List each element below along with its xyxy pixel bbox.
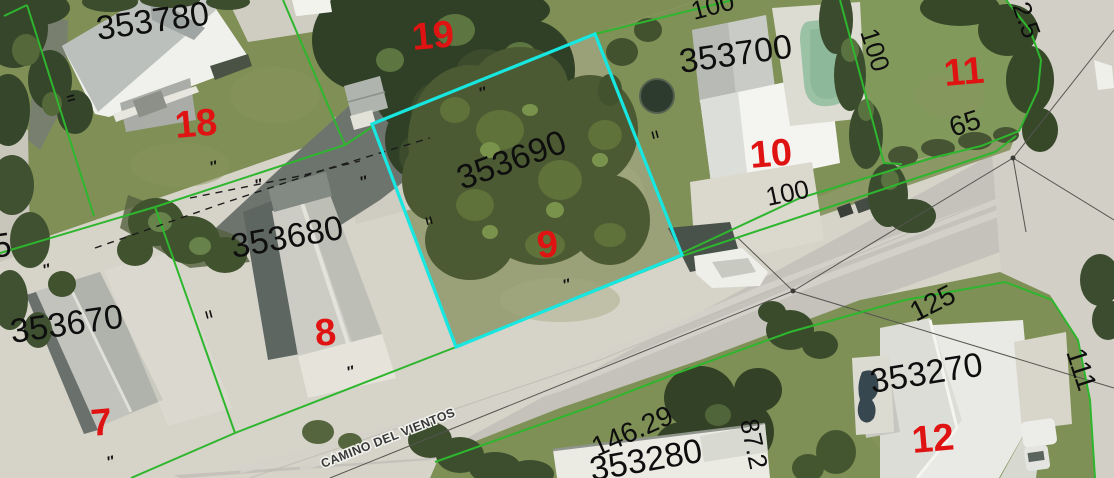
svg-text:11: 11 bbox=[942, 50, 986, 95]
svg-text:8: 8 bbox=[313, 311, 338, 355]
svg-text:10: 10 bbox=[748, 131, 794, 177]
svg-text:18: 18 bbox=[173, 101, 219, 147]
svg-text:7: 7 bbox=[89, 401, 114, 445]
svg-text:12: 12 bbox=[910, 416, 956, 462]
svg-text:9: 9 bbox=[535, 223, 560, 267]
svg-text:19: 19 bbox=[410, 13, 456, 59]
